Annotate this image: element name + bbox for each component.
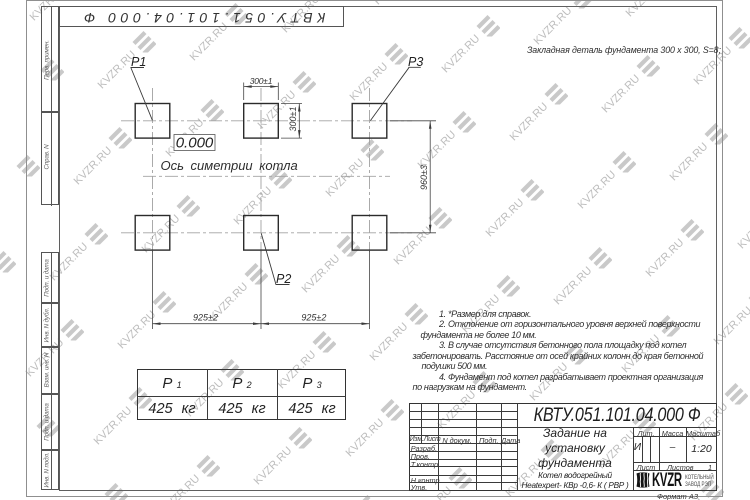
- svg-text:925±2: 925±2: [193, 313, 218, 323]
- svg-text:300±1: 300±1: [288, 107, 298, 132]
- svg-text:960±3: 960±3: [419, 165, 429, 190]
- svg-text:0.000: 0.000: [176, 135, 214, 152]
- svg-text:Р1: Р1: [131, 55, 146, 69]
- svg-text:Р2: Р2: [276, 272, 291, 286]
- svg-text:Р3: Р3: [408, 55, 423, 69]
- svg-text:300±1: 300±1: [250, 76, 273, 86]
- svg-text:925±2: 925±2: [301, 313, 326, 323]
